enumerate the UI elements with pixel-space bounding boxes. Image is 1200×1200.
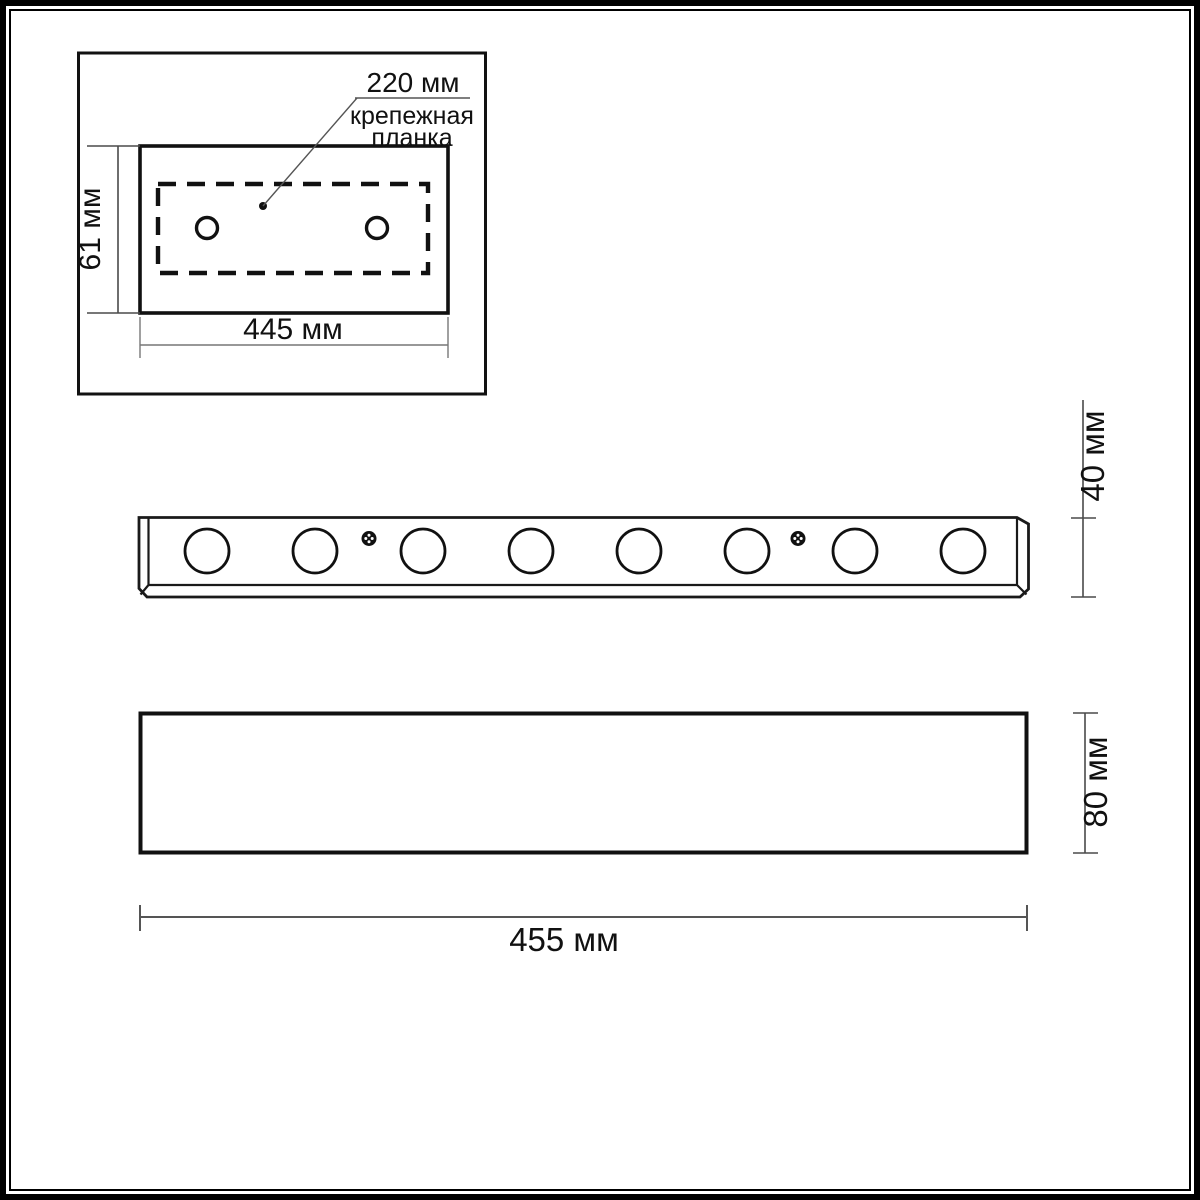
screw-head — [791, 531, 806, 546]
lamp-spot-circle — [293, 529, 337, 573]
bar-depth-dimension: 40 мм — [1071, 400, 1111, 597]
fixture-bottom-view: 40 мм — [139, 400, 1111, 597]
bar-depth-label: 40 мм — [1074, 410, 1111, 501]
mounting-hole-left — [197, 218, 218, 239]
lamp-spot-circle — [401, 529, 445, 573]
screw-hole — [368, 540, 371, 543]
page-frame — [3, 3, 1197, 1197]
screw-dot — [791, 531, 806, 546]
leader-diagonal-line — [263, 98, 357, 206]
mounting-hole-right — [367, 218, 388, 239]
front-height-dimension: 80 мм — [1073, 713, 1114, 853]
screw-hole — [797, 540, 800, 543]
screw-hole — [371, 537, 374, 540]
lamp-spot-circle — [617, 529, 661, 573]
front-width-dimension: 455 мм — [140, 905, 1027, 958]
lamp-spots — [185, 529, 985, 573]
screw-hole — [797, 534, 800, 537]
lamp-spot-circle — [833, 529, 877, 573]
lamp-spot-circle — [185, 529, 229, 573]
front-view-outline — [141, 714, 1027, 853]
front-height-label: 80 мм — [1077, 736, 1114, 827]
screw-hole — [368, 534, 371, 537]
screw-hole — [793, 537, 796, 540]
fixture-front-view: 80 мм 455 мм — [140, 713, 1114, 958]
lamp-spot-circle — [941, 529, 985, 573]
mounting-plate-inset: 220 мм крепежная планка 61 мм 445 мм — [74, 53, 486, 394]
screw-head — [362, 531, 377, 546]
frame-outer-border — [3, 3, 1197, 1197]
callout-text-line2: планка — [371, 124, 452, 152]
frame-inner-border — [10, 10, 1190, 1190]
callout-dimension-label: 220 мм — [367, 67, 460, 98]
inset-height-dimension: 61 мм — [74, 146, 140, 313]
inset-width-label: 445 мм — [243, 313, 343, 346]
screw-hole — [800, 537, 803, 540]
screw-hole — [364, 537, 367, 540]
inset-height-label: 61 мм — [74, 188, 107, 271]
front-width-label: 455 мм — [509, 921, 619, 958]
technical-drawing: 220 мм крепежная планка 61 мм 445 мм — [0, 0, 1200, 1200]
inset-width-dimension: 445 мм — [140, 313, 448, 358]
lamp-spot-circle — [725, 529, 769, 573]
lamp-spot-circle — [509, 529, 553, 573]
screw-dot — [362, 531, 377, 546]
bar-depth-edges — [141, 518, 1027, 595]
